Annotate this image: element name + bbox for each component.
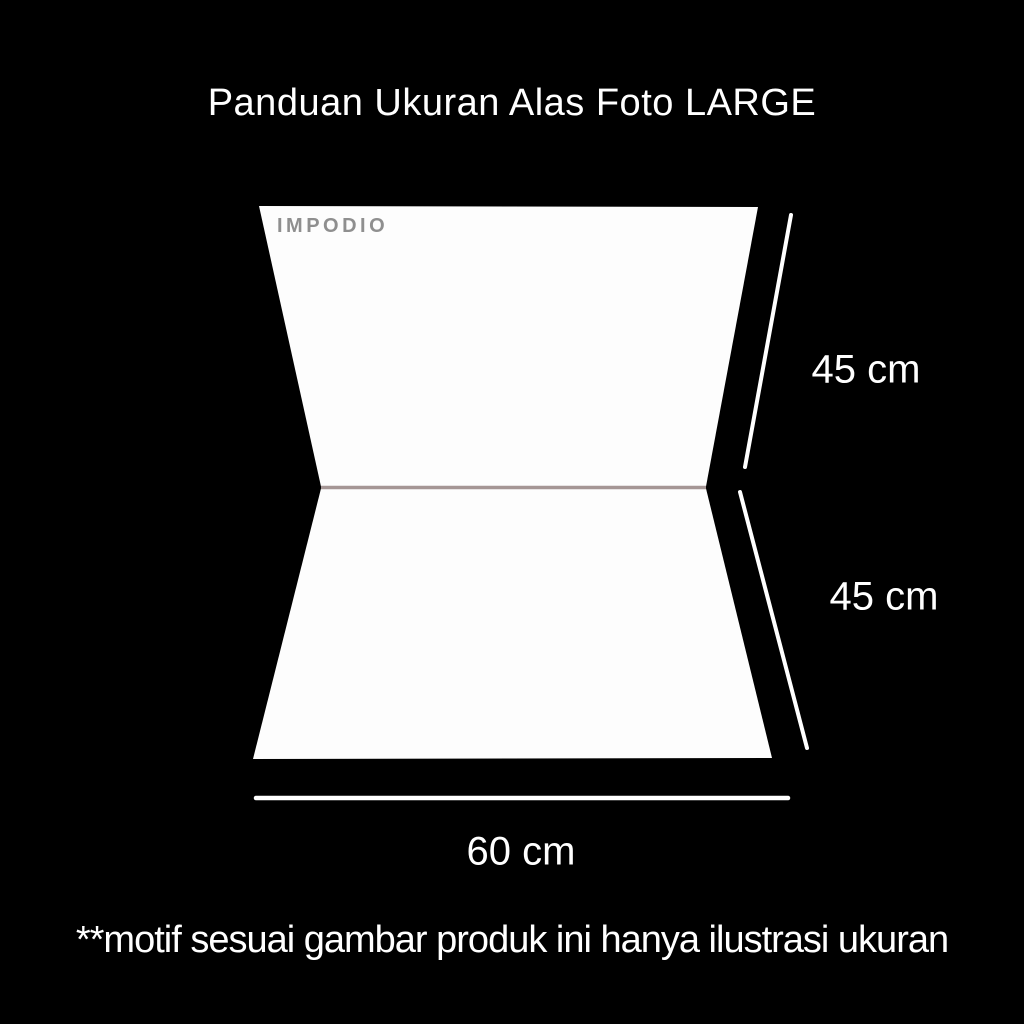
height-dimension-line bbox=[745, 215, 791, 467]
depth-dimension-label: 45 cm bbox=[830, 575, 939, 620]
height-dimension-label: 45 cm bbox=[812, 348, 921, 393]
width-dimension-label: 60 cm bbox=[467, 830, 576, 875]
size-guide-poster: Panduan Ukuran Alas Foto LARGE IMPODIO 4… bbox=[0, 0, 1024, 1024]
watermark-logo: IMPODIO bbox=[277, 215, 388, 238]
floor-panel-shape bbox=[253, 489, 772, 760]
back-panel-shape bbox=[259, 206, 758, 487]
footnote: **motif sesuai gambar produk ini hanya i… bbox=[0, 919, 1024, 962]
